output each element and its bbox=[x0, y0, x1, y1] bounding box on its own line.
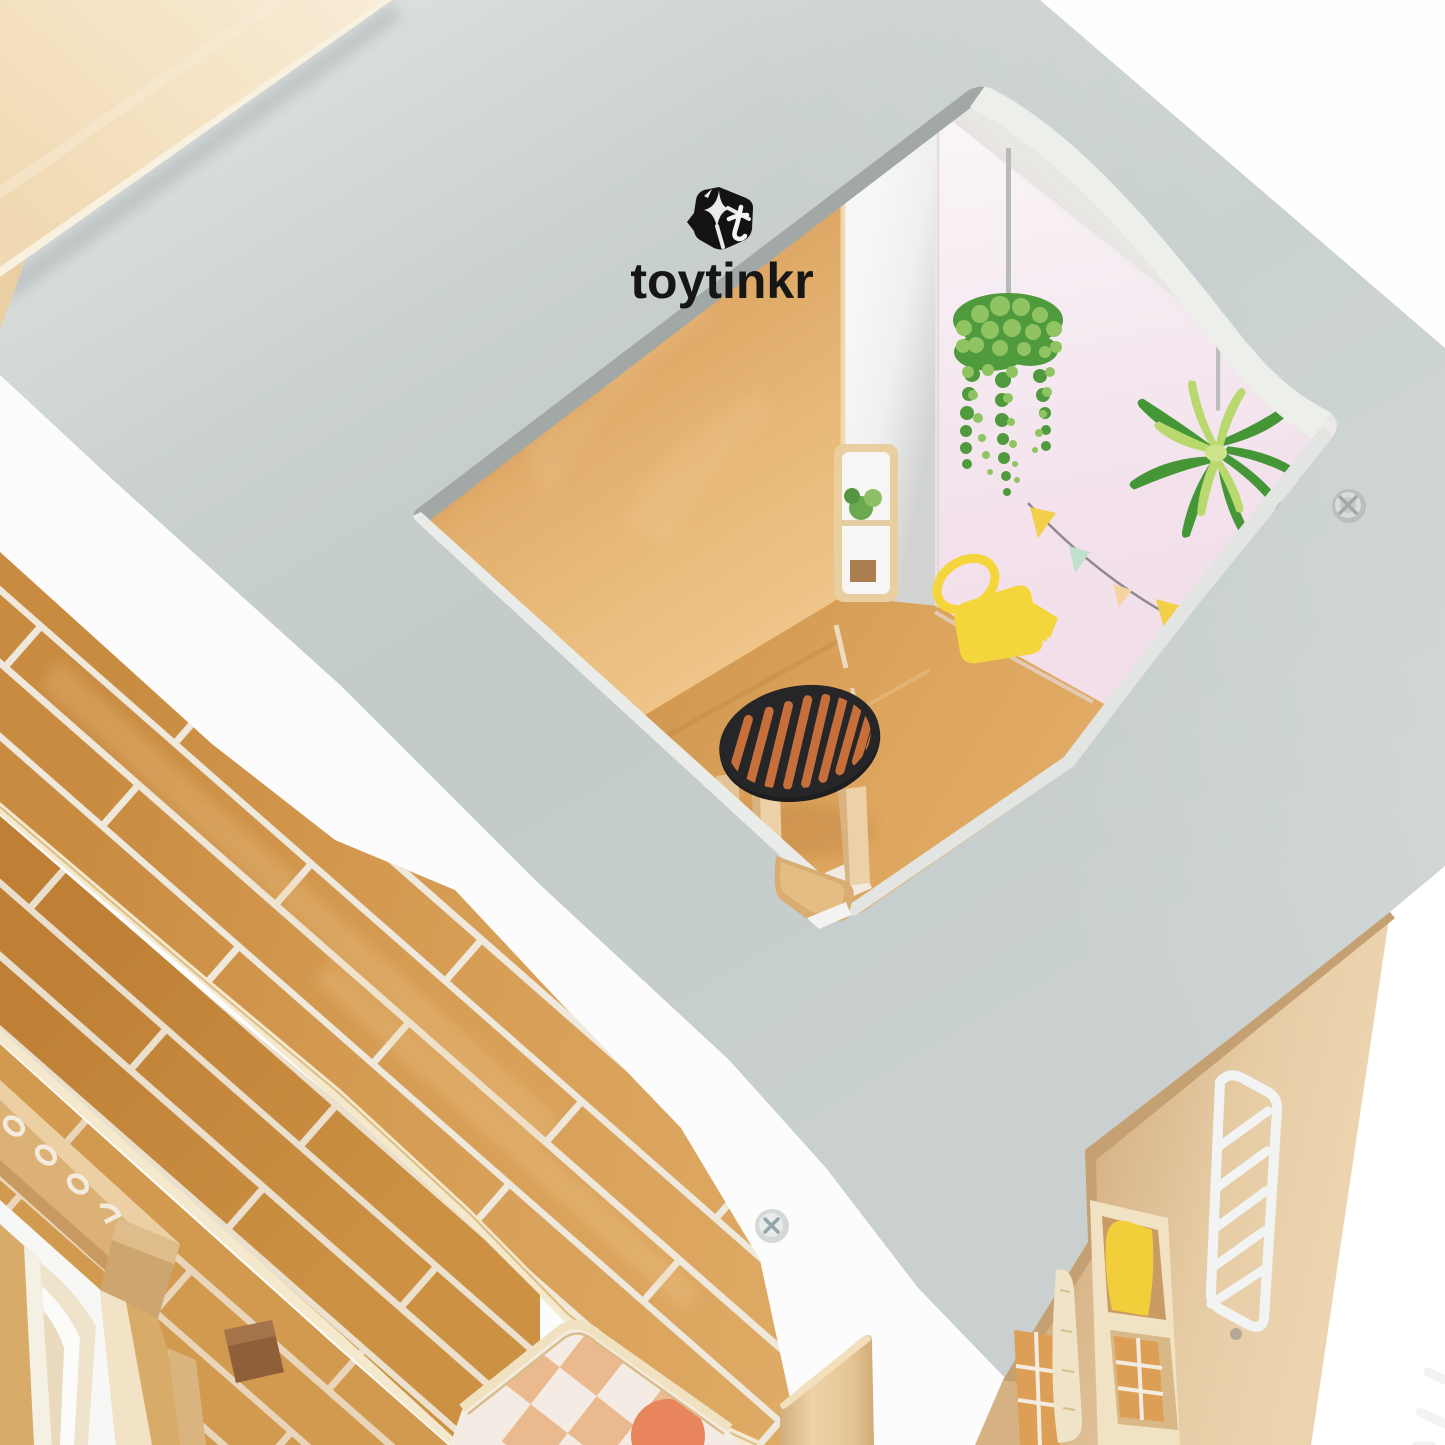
svg-text:toytinkr: toytinkr bbox=[630, 253, 813, 309]
